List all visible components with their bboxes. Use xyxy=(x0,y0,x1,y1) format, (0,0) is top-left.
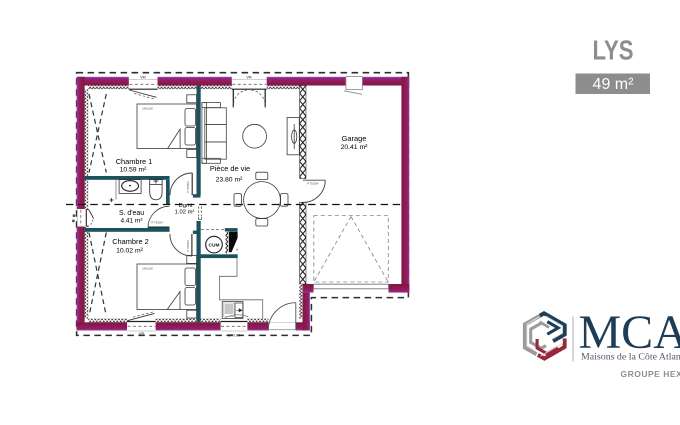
svg-text:P 75/204: P 75/204 xyxy=(186,181,190,193)
svg-text:Chambre 1: Chambre 1 xyxy=(116,157,153,166)
svg-text:SF0.90: SF0.90 xyxy=(228,332,242,337)
svg-text:Pièce de vie: Pièce de vie xyxy=(210,164,250,173)
svg-text:Garage: Garage xyxy=(342,134,367,143)
svg-text:140x200: 140x200 xyxy=(142,106,153,110)
svg-text:VR: VR xyxy=(139,331,145,336)
svg-text:GROUPE HEXAOM: GROUPE HEXAOM xyxy=(621,369,680,379)
svg-text:P 75/204: P 75/204 xyxy=(151,221,163,225)
svg-text:VR: VR xyxy=(140,74,146,79)
svg-text:23.80 m²: 23.80 m² xyxy=(216,177,244,184)
svg-text:10.02 m²: 10.02 m² xyxy=(116,248,144,255)
svg-text:P 75/204: P 75/204 xyxy=(186,240,190,252)
svg-text:20.41 m²: 20.41 m² xyxy=(341,144,369,151)
svg-text:LYS: LYS xyxy=(593,35,634,66)
svg-text:4.41 m²: 4.41 m² xyxy=(120,217,143,224)
svg-text:P 75/204: P 75/204 xyxy=(307,182,319,186)
svg-text:Chambre 2: Chambre 2 xyxy=(112,237,149,246)
svg-text:VR: VR xyxy=(246,74,252,79)
svg-text:140x200: 140x200 xyxy=(142,266,153,270)
svg-text:S. d'eau: S. d'eau xyxy=(119,210,144,217)
svg-text:1.02 m²: 1.02 m² xyxy=(175,209,195,215)
svg-text:10.59 m²: 10.59 m² xyxy=(120,166,148,173)
svg-text:Maisons de la Côte Atlantique: Maisons de la Côte Atlantique xyxy=(581,351,680,362)
svg-text:CUM: CUM xyxy=(209,243,220,249)
svg-text:Dgmt: Dgmt xyxy=(179,203,193,209)
svg-text:49 m²: 49 m² xyxy=(593,76,635,93)
